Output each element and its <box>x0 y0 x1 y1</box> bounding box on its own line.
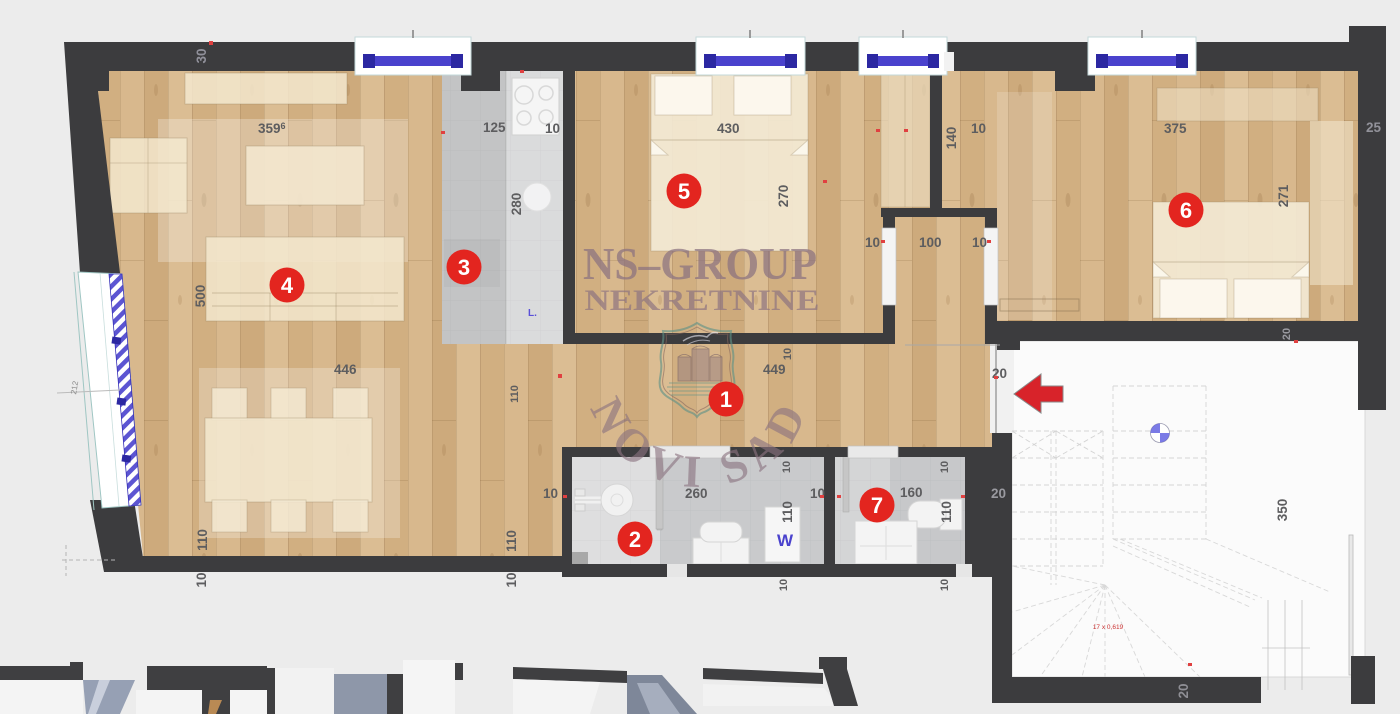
svg-text:10: 10 <box>782 348 794 360</box>
svg-text:160: 160 <box>900 485 923 500</box>
svg-text:17 x 0,619: 17 x 0,619 <box>1093 624 1124 631</box>
svg-text:3: 3 <box>458 255 470 280</box>
svg-text:271: 271 <box>1276 184 1291 207</box>
svg-text:1: 1 <box>720 387 732 412</box>
svg-text:7: 7 <box>871 493 883 518</box>
svg-text:20: 20 <box>1281 328 1293 340</box>
svg-text:10: 10 <box>504 572 519 587</box>
svg-text:10: 10 <box>810 486 825 501</box>
svg-text:10: 10 <box>939 461 951 473</box>
svg-text:20: 20 <box>991 486 1006 501</box>
svg-text:280: 280 <box>509 193 524 216</box>
svg-text:4: 4 <box>281 273 294 298</box>
svg-text:10: 10 <box>939 579 951 591</box>
svg-text:NS–GROUP: NS–GROUP <box>583 238 817 289</box>
svg-text:10: 10 <box>865 235 880 250</box>
svg-text:10: 10 <box>194 572 209 587</box>
svg-text:10: 10 <box>778 579 790 591</box>
svg-text:10: 10 <box>972 235 987 250</box>
svg-text:10: 10 <box>545 121 560 136</box>
svg-text:20: 20 <box>1176 683 1191 698</box>
svg-text:30: 30 <box>194 48 209 63</box>
svg-text:110: 110 <box>509 385 521 403</box>
svg-text:125: 125 <box>483 120 506 135</box>
svg-text:10: 10 <box>971 121 986 136</box>
svg-text:L.: L. <box>528 308 537 319</box>
svg-text:446: 446 <box>334 362 357 377</box>
svg-text:6: 6 <box>1180 198 1192 223</box>
svg-text:500: 500 <box>193 285 208 308</box>
svg-text:10: 10 <box>543 486 558 501</box>
svg-text:110: 110 <box>195 529 210 551</box>
svg-text:110: 110 <box>780 501 795 523</box>
svg-text:350: 350 <box>1275 499 1290 522</box>
svg-text:375: 375 <box>1164 121 1187 136</box>
svg-text:430: 430 <box>717 121 740 136</box>
svg-text:25: 25 <box>1366 120 1382 135</box>
svg-text:110: 110 <box>504 530 519 552</box>
svg-text:NEKRETNINE: NEKRETNINE <box>585 284 820 317</box>
svg-text:100: 100 <box>919 235 942 250</box>
svg-text:2: 2 <box>629 527 641 552</box>
svg-text:270: 270 <box>776 185 791 208</box>
svg-text:W: W <box>777 531 794 550</box>
svg-text:5: 5 <box>678 179 690 204</box>
svg-text:110: 110 <box>939 501 954 523</box>
svg-text:449: 449 <box>763 362 786 377</box>
svg-text:140: 140 <box>944 127 959 150</box>
